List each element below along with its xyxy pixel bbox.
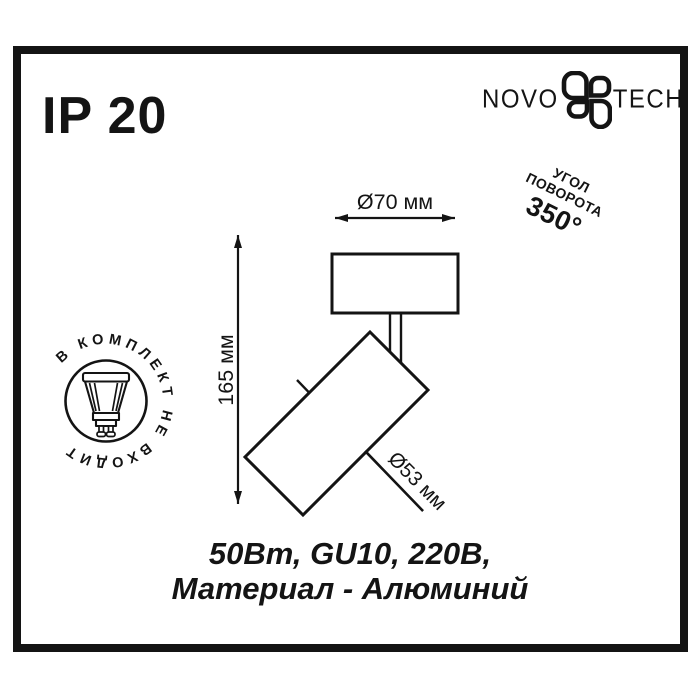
specs-line1: 50Вт, GU10, 220В,: [0, 536, 700, 571]
dimension-label-height: 165 мм: [214, 334, 238, 405]
product-specs: 50Вт, GU10, 220В, Материал - Алюминий: [0, 536, 700, 607]
specs-line2: Материал - Алюминий: [0, 571, 700, 606]
dimension-label-top-width: Ø70 мм: [357, 190, 433, 214]
fixture-canopy: [332, 254, 458, 313]
